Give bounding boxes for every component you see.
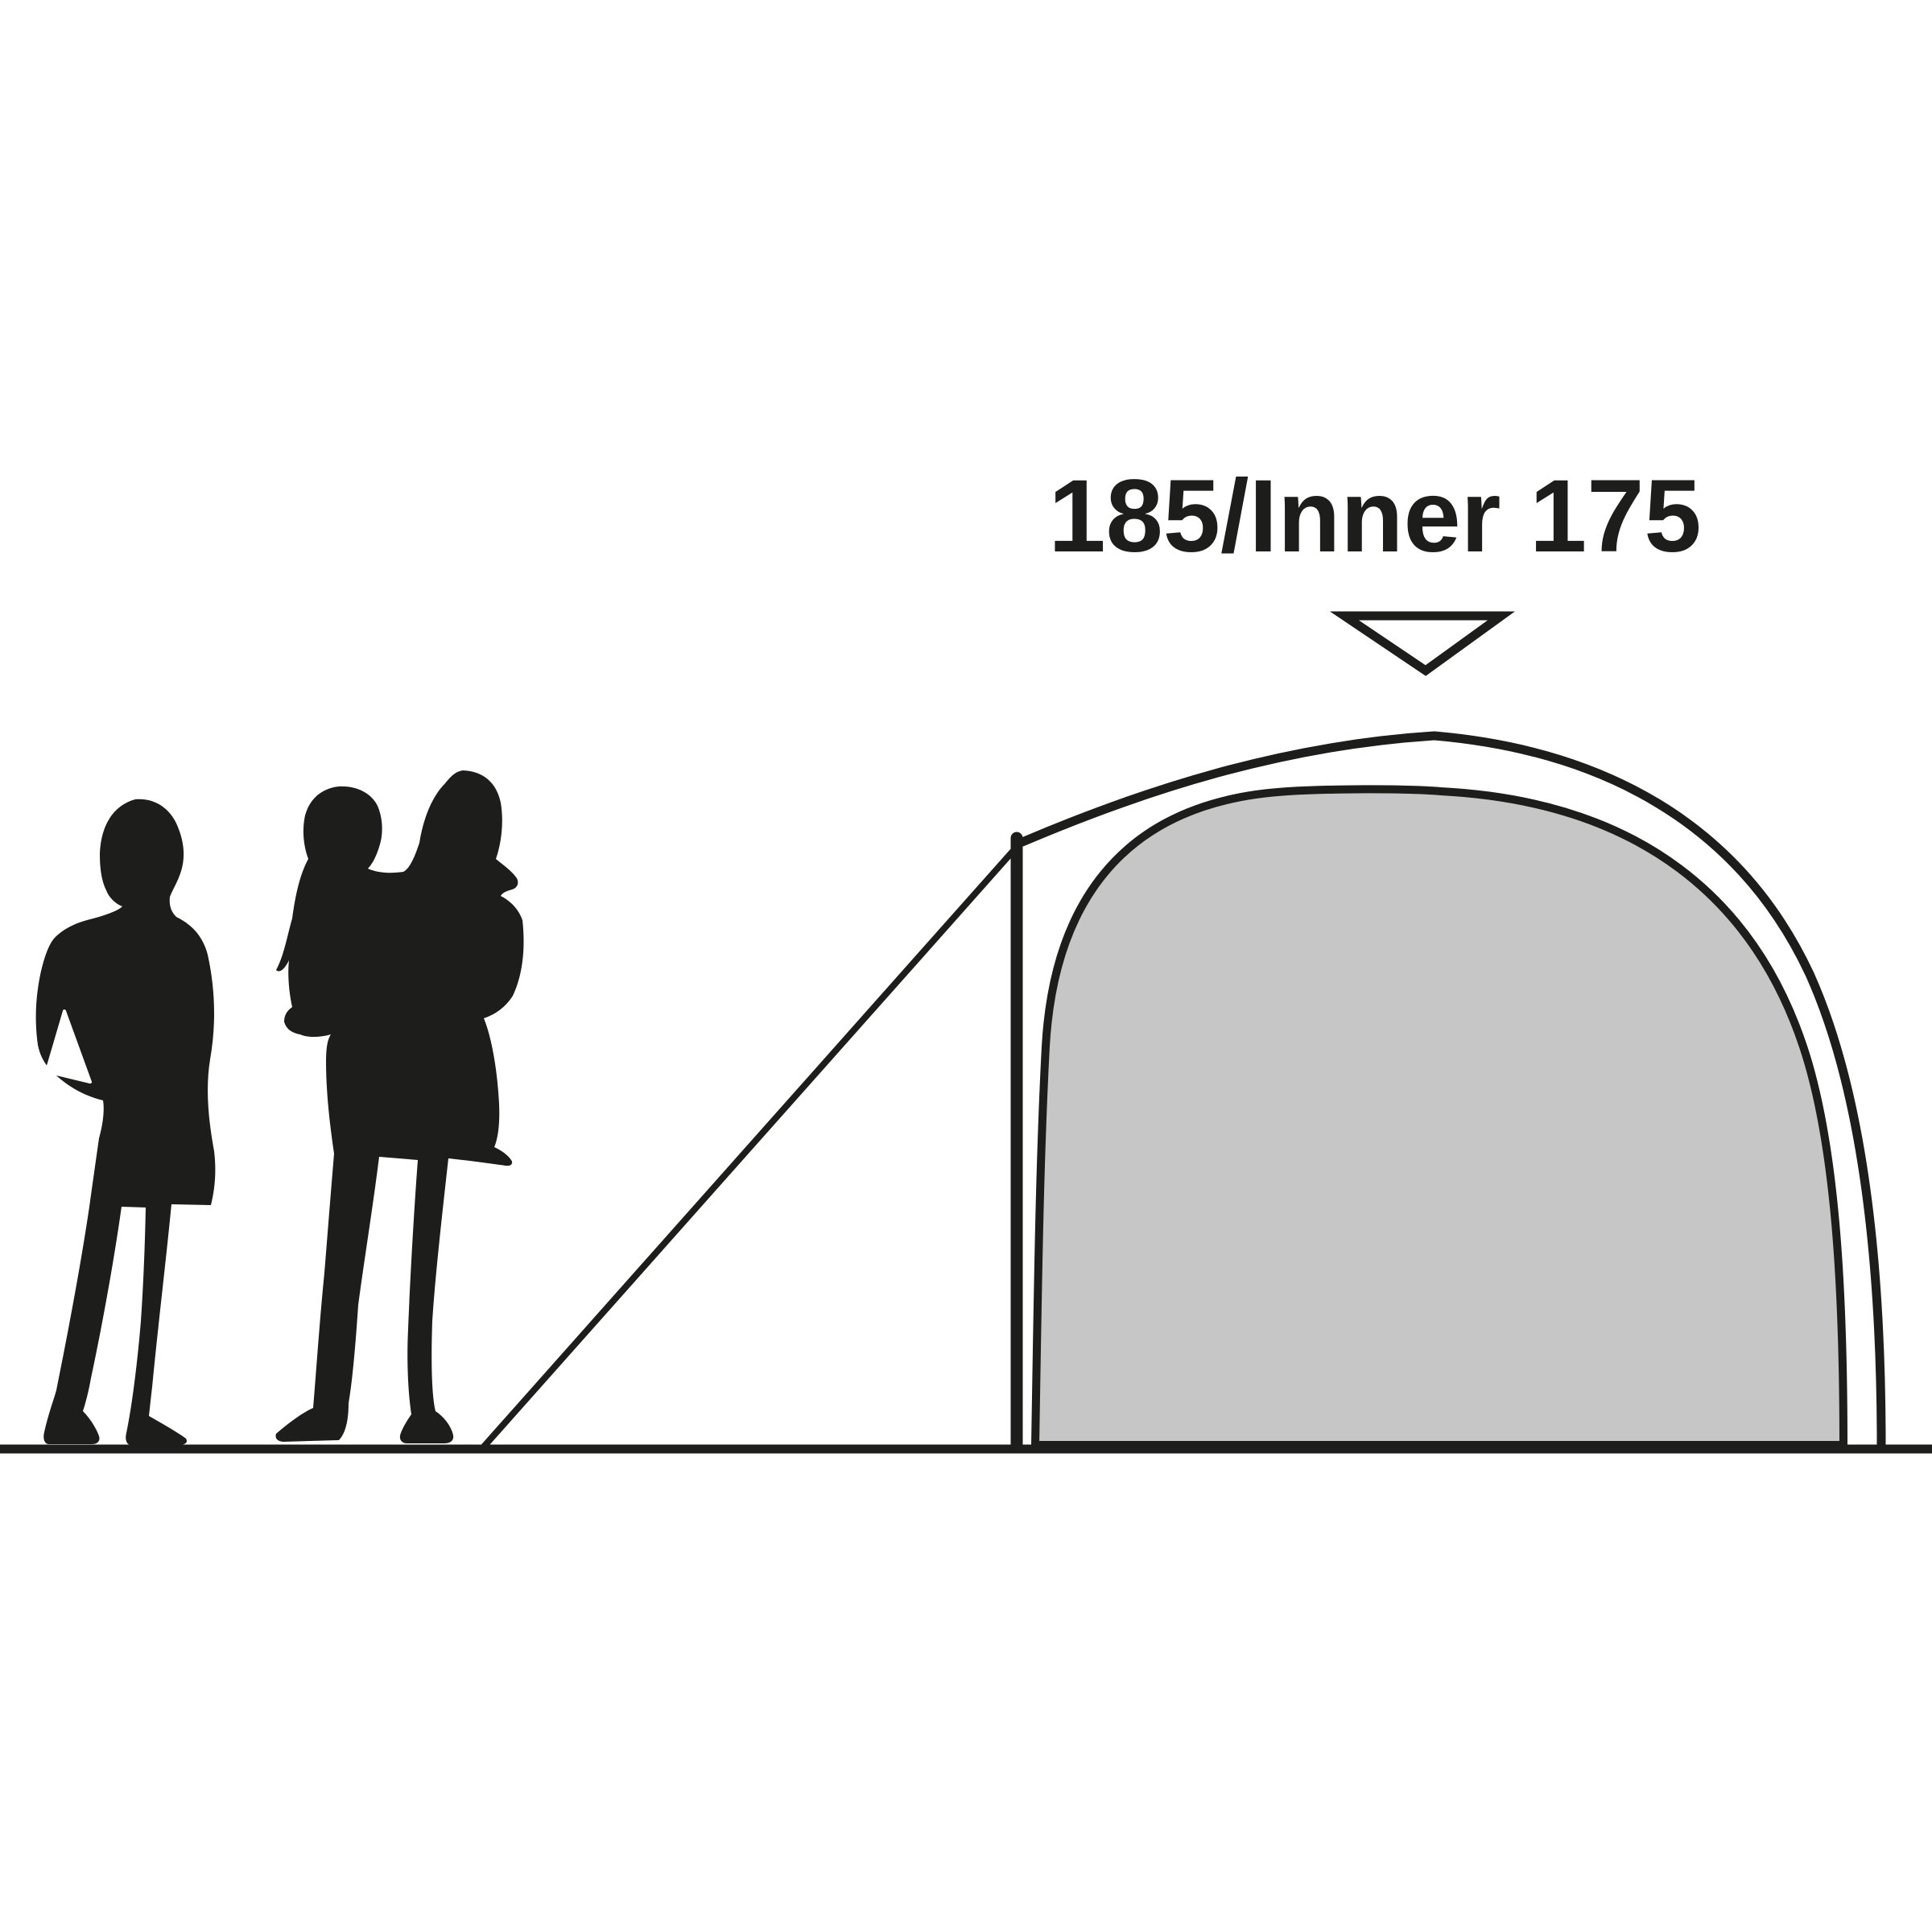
tent-inner-profile xyxy=(1035,789,1843,1445)
adult-silhouette xyxy=(36,799,216,1445)
tent-height-diagram: 185/Inner 175 xyxy=(0,0,1932,1932)
guy-line xyxy=(484,847,1017,1447)
height-indicator-arrow-icon xyxy=(1344,616,1501,671)
height-annotation-label: 185/Inner 175 xyxy=(1048,459,1701,574)
adult-carrying-child-silhouette xyxy=(275,770,523,1443)
diagram-canvas: 185/Inner 175 xyxy=(0,0,1932,1932)
